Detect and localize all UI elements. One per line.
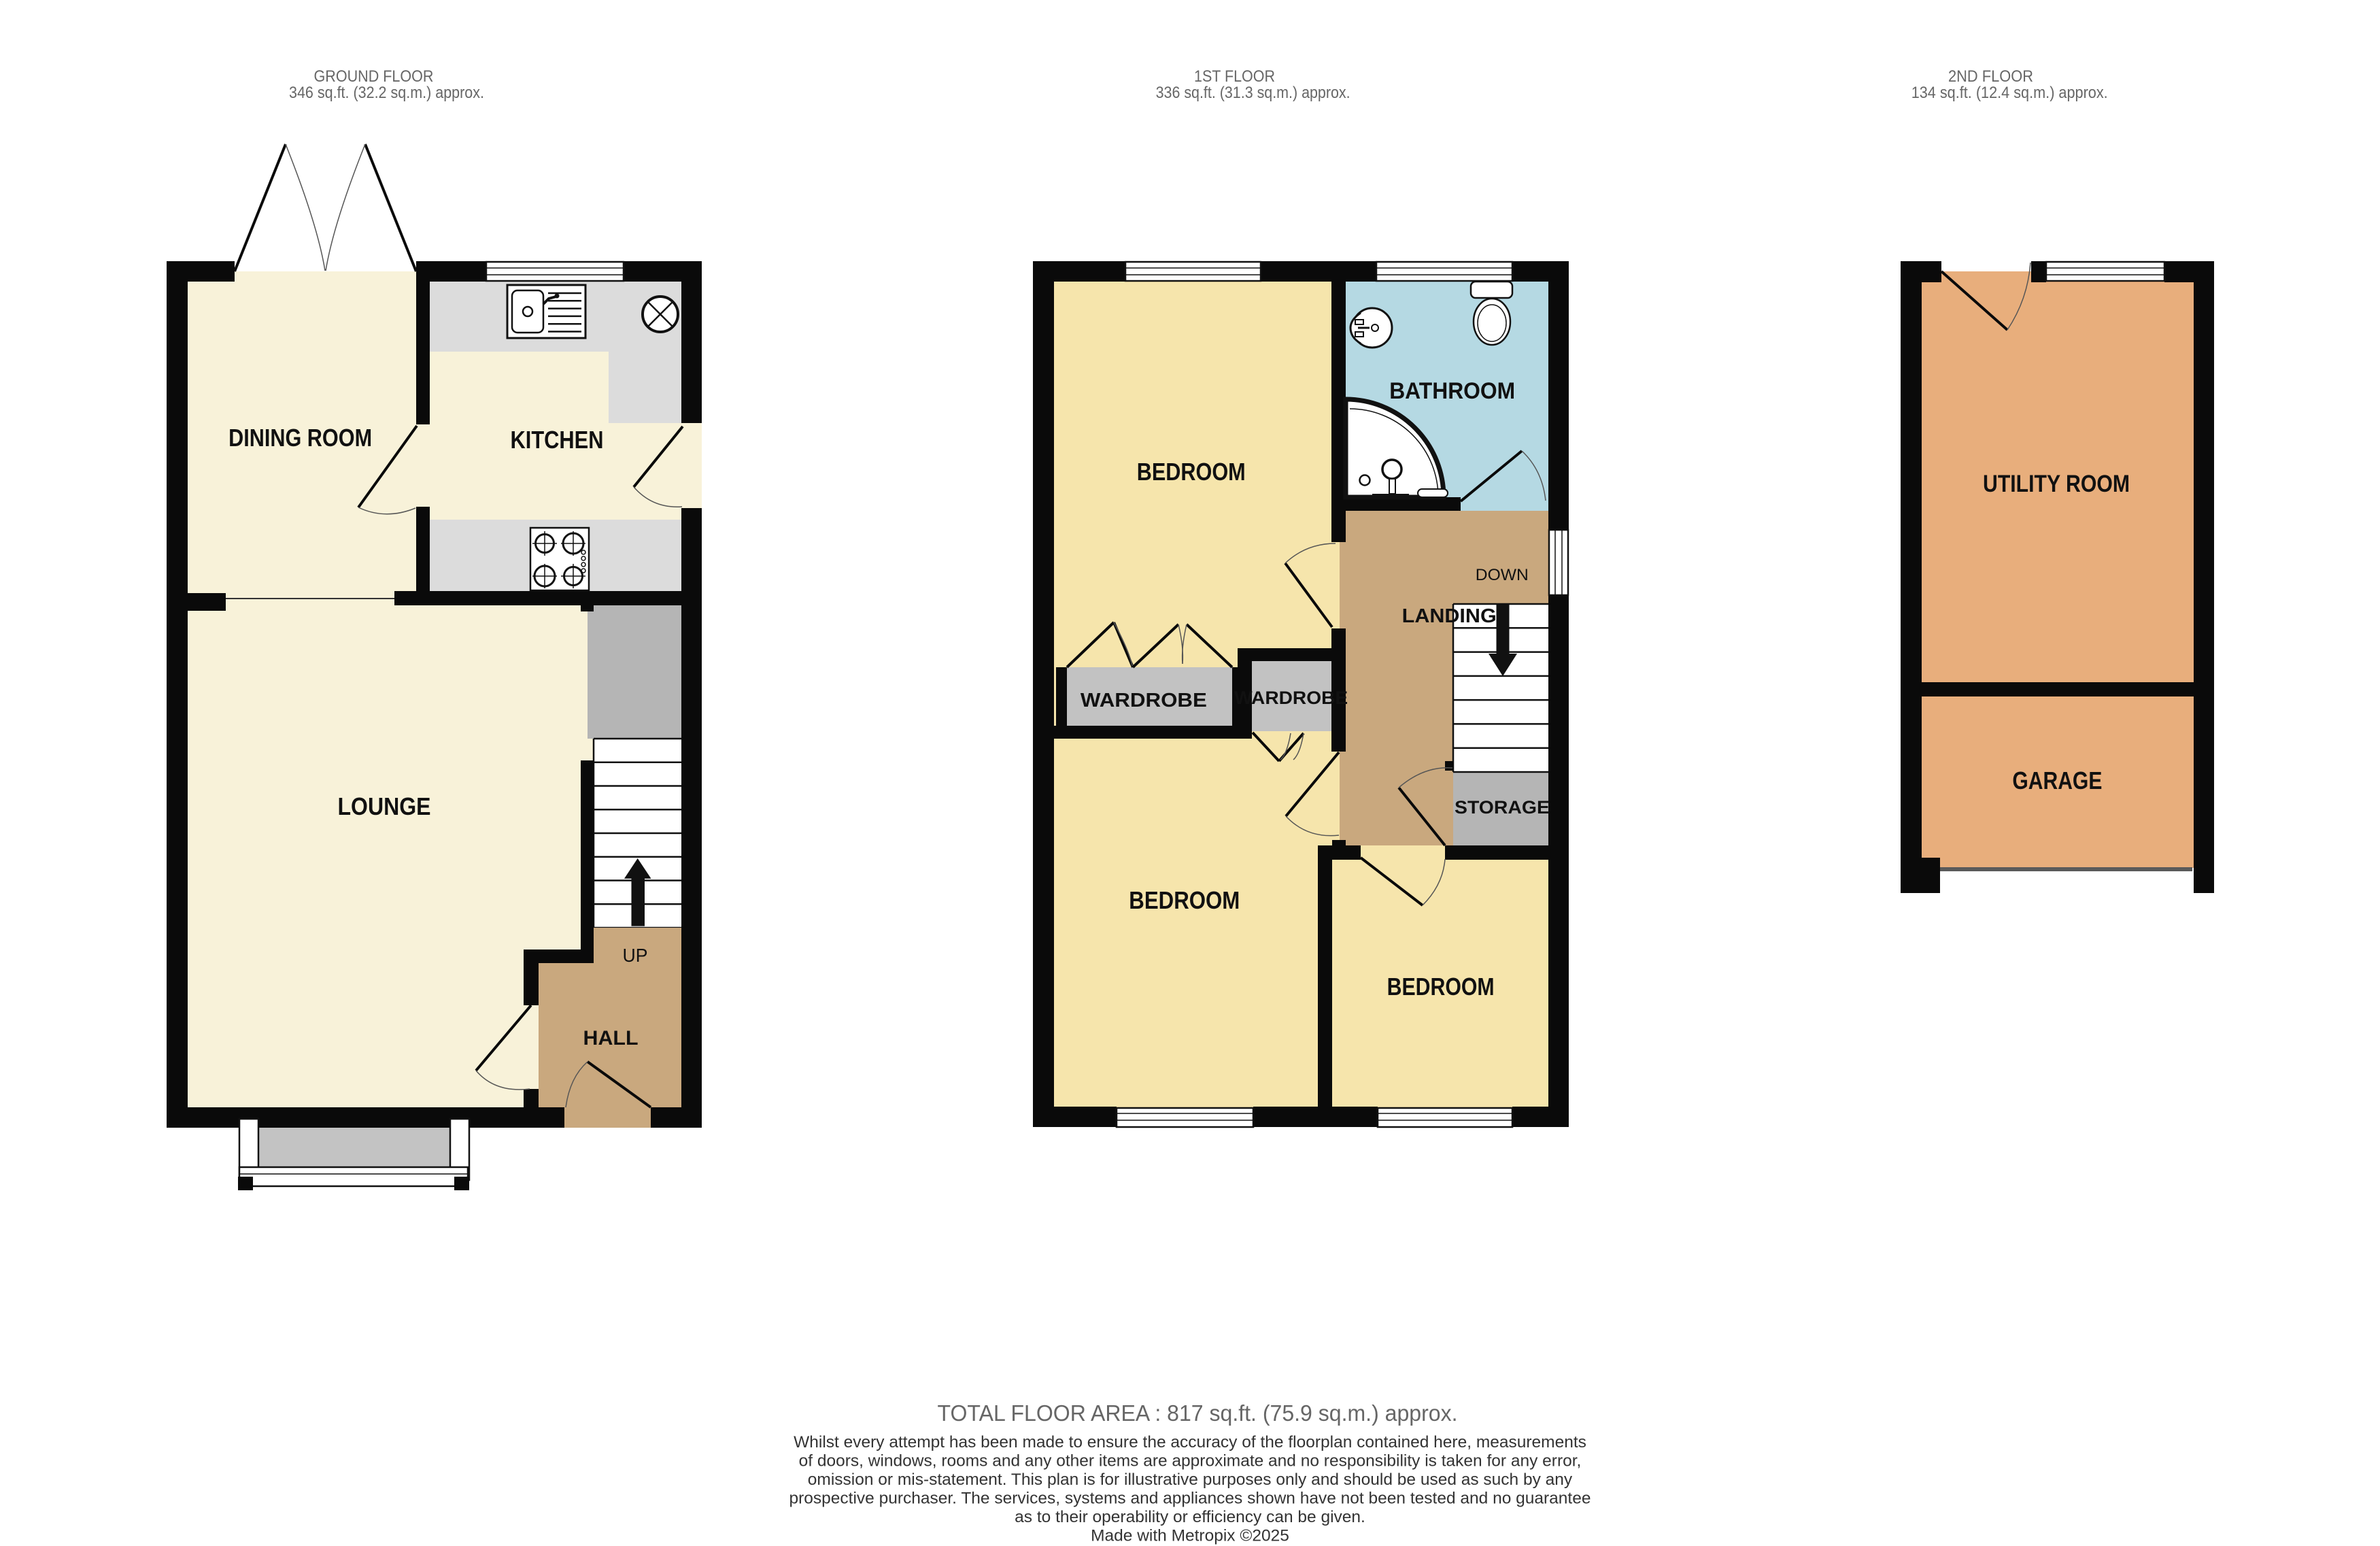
svg-text:LOUNGE: LOUNGE bbox=[338, 792, 431, 820]
svg-text:Made with Metropix ©2025: Made with Metropix ©2025 bbox=[1091, 1527, 1289, 1545]
svg-text:STORAGE: STORAGE bbox=[1455, 797, 1550, 818]
svg-text:2ND FLOOR: 2ND FLOOR bbox=[1948, 67, 2033, 86]
svg-text:TOTAL FLOOR AREA : 817 sq.ft.: TOTAL FLOOR AREA : 817 sq.ft. (75.9 sq.m… bbox=[938, 1400, 1458, 1426]
svg-text:LANDING: LANDING bbox=[1402, 605, 1497, 627]
svg-text:Whilst every attempt has been: Whilst every attempt has been made to en… bbox=[794, 1433, 1586, 1451]
svg-text:WARDROBE: WARDROBE bbox=[1234, 688, 1348, 708]
svg-text:KITCHEN: KITCHEN bbox=[511, 426, 604, 454]
svg-text:DOWN: DOWN bbox=[1476, 566, 1529, 584]
svg-text:as to their operability or eff: as to their operability or efficiency ca… bbox=[1015, 1508, 1365, 1526]
svg-text:1ST FLOOR: 1ST FLOOR bbox=[1194, 67, 1275, 86]
svg-text:134 sq.ft. (12.4 sq.m.) approx: 134 sq.ft. (12.4 sq.m.) approx. bbox=[1911, 84, 2108, 102]
svg-text:WARDROBE: WARDROBE bbox=[1081, 690, 1207, 711]
svg-text:prospective purchaser. The ser: prospective purchaser. The services, sys… bbox=[789, 1490, 1591, 1508]
svg-text:346 sq.ft. (32.2 sq.m.) approx: 346 sq.ft. (32.2 sq.m.) approx. bbox=[289, 84, 484, 102]
svg-text:336 sq.ft. (31.3 sq.m.) approx: 336 sq.ft. (31.3 sq.m.) approx. bbox=[1156, 84, 1350, 102]
svg-text:GROUND FLOOR: GROUND FLOOR bbox=[314, 67, 434, 86]
svg-text:BEDROOM: BEDROOM bbox=[1129, 886, 1240, 914]
svg-text:BEDROOM: BEDROOM bbox=[1387, 973, 1495, 1001]
svg-text:DINING ROOM: DINING ROOM bbox=[228, 424, 372, 452]
svg-text:of doors, windows, rooms and a: of doors, windows, rooms and any other i… bbox=[799, 1452, 1582, 1471]
svg-text:BEDROOM: BEDROOM bbox=[1137, 458, 1246, 486]
svg-text:UP: UP bbox=[623, 945, 648, 966]
svg-text:GARAGE: GARAGE bbox=[2012, 767, 2102, 794]
svg-text:BATHROOM: BATHROOM bbox=[1389, 378, 1515, 404]
svg-text:HALL: HALL bbox=[583, 1027, 639, 1049]
svg-text:omission or mis-statement. Thi: omission or mis-statement. This plan is … bbox=[808, 1471, 1573, 1489]
svg-text:UTILITY ROOM: UTILITY ROOM bbox=[1983, 471, 2130, 497]
